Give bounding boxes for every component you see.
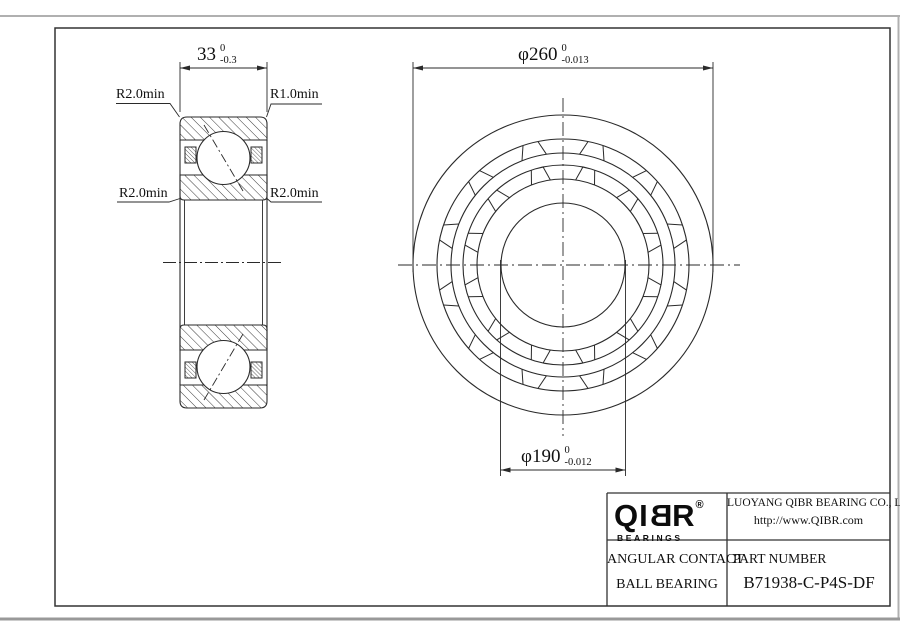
part-number-value: B71938-C-P4S-DF <box>733 573 885 593</box>
dimension-od-value: φ260 <box>518 45 557 64</box>
cross-section-view <box>163 117 284 408</box>
dimension-width-tolerance: 0 -0.3 <box>220 43 237 66</box>
brand-logo-subtext: BEARINGS <box>617 533 704 543</box>
company-url: http://www.QIBR.com <box>727 513 890 528</box>
dimension-od-text: φ260 0 -0.013 <box>518 45 589 66</box>
bearing-description: ANGULAR CONTACT BALL BEARING <box>607 547 727 597</box>
dimension-od-lines <box>413 62 713 272</box>
part-number-label: PART NUMBER <box>733 551 885 567</box>
dimension-bore-text: φ190 0 -0.012 <box>521 447 592 468</box>
bearing-description-line1: ANGULAR CONTACT <box>607 547 727 572</box>
radius-label-mid-right: R2.0min <box>270 187 319 201</box>
radius-label-top-left: R2.0min <box>116 88 165 102</box>
dimension-width-value: 33 <box>197 45 216 64</box>
dimension-width-lines <box>180 62 267 112</box>
dimension-od-tolerance: 0 -0.013 <box>561 43 588 66</box>
brand-logo-wordmark: QIBR® <box>614 500 704 531</box>
dimension-bore-value: φ190 <box>521 447 560 466</box>
page-edges <box>0 16 900 619</box>
registered-mark: ® <box>696 499 704 511</box>
dimension-bore-tolerance: 0 -0.012 <box>564 445 591 468</box>
drawing-page: 33 0 -0.3 φ260 0 -0.013 φ190 0 -0.012 R2… <box>0 0 900 636</box>
front-view <box>398 98 740 436</box>
dimension-width-text: 33 0 -0.3 <box>197 45 237 66</box>
company-cell: LUOYANG QIBR BEARING CO., LTD http://www… <box>727 497 890 528</box>
radius-label-top-right: R1.0min <box>270 88 319 102</box>
company-name: LUOYANG QIBR BEARING CO., LTD <box>727 497 890 509</box>
bearing-description-line2: BALL BEARING <box>607 572 727 597</box>
part-cell: PART NUMBER B71938-C-P4S-DF <box>733 551 885 593</box>
radius-label-mid-left: R2.0min <box>119 187 168 201</box>
brand-logo: QIBR® BEARINGS <box>614 500 704 543</box>
